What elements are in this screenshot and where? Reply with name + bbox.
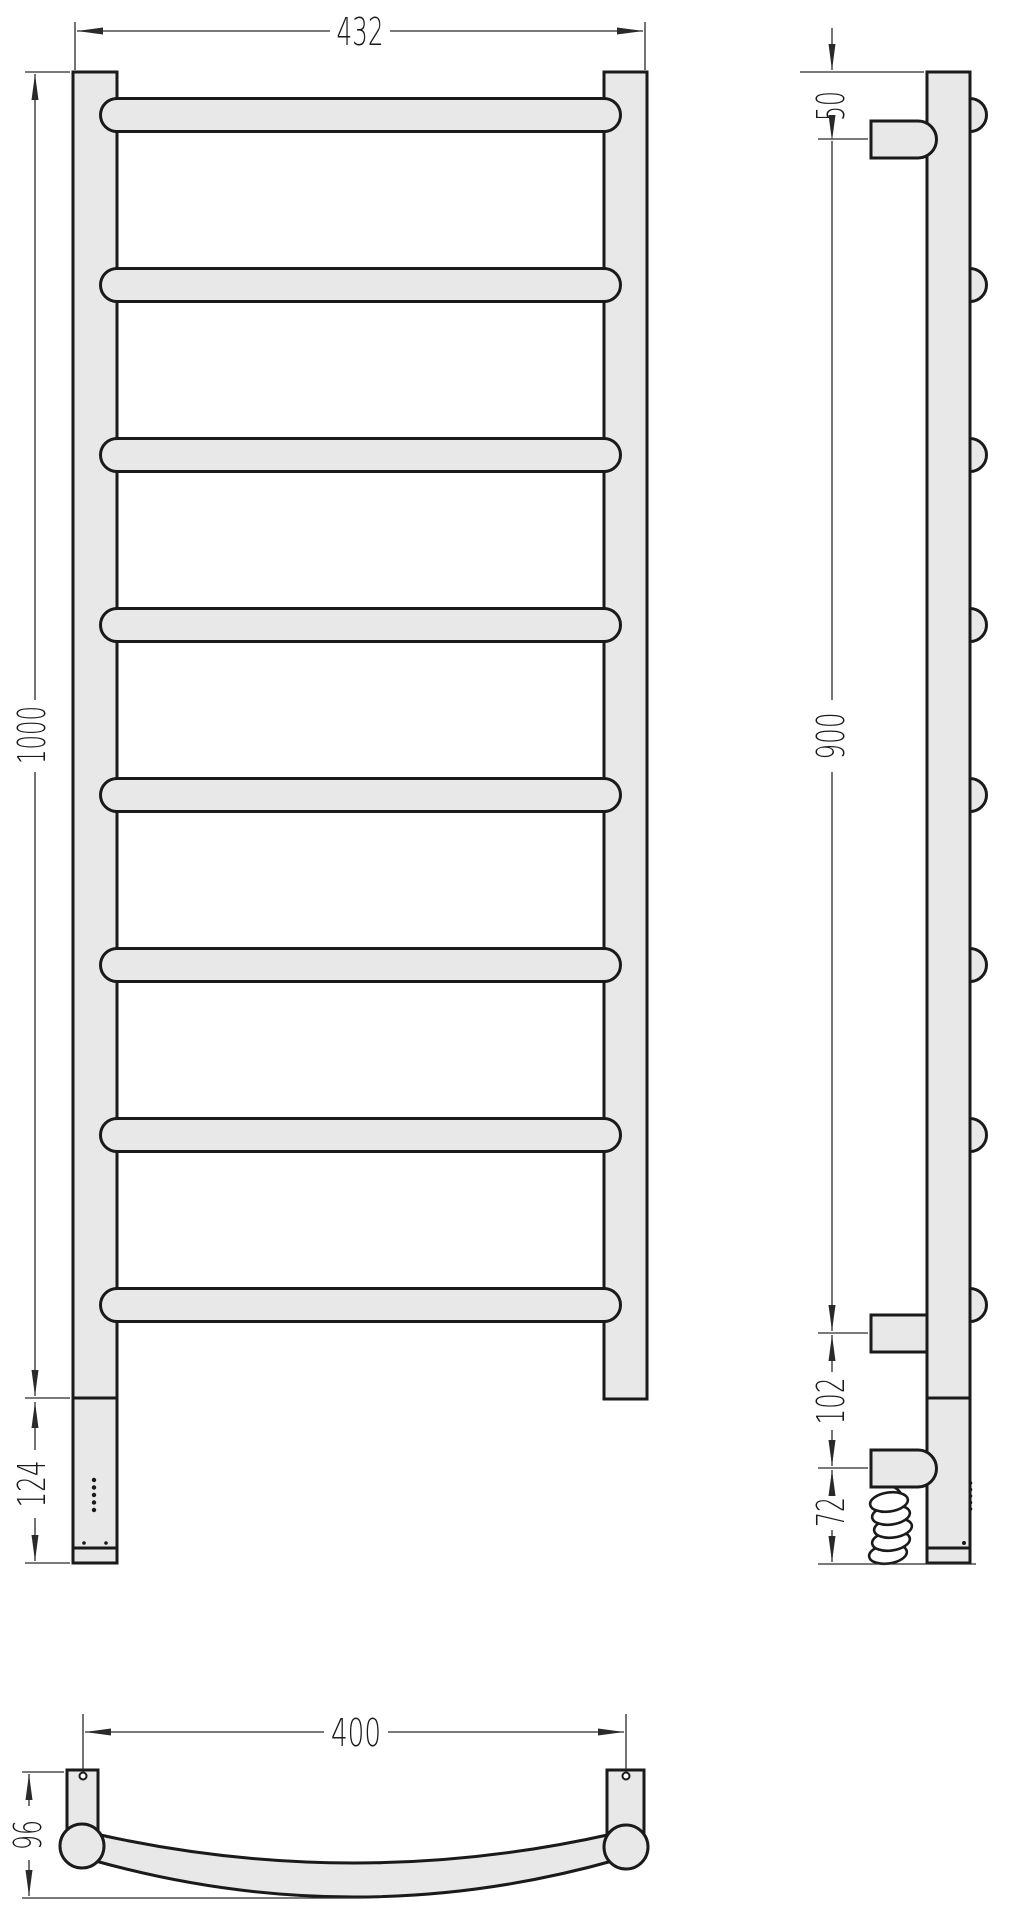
cable-entry-bracket <box>871 1450 937 1487</box>
towel-bar <box>101 609 621 642</box>
right-post-section <box>604 1825 648 1869</box>
towel-bar <box>101 99 621 132</box>
dim-label-432: 432 <box>337 10 384 54</box>
dim-label-72: 72 <box>809 1497 853 1527</box>
dim-label-96: 96 <box>6 1820 50 1850</box>
power-cable-coil <box>868 1487 913 1566</box>
dim-label-900: 900 <box>809 713 853 760</box>
towel-bar <box>101 779 621 812</box>
dim-label-102: 102 <box>809 1378 853 1425</box>
technical-drawing-page: 432 1000 124 50 900 <box>0 0 1020 1920</box>
towel-rail-drawing: 432 1000 124 50 900 <box>0 0 1020 1920</box>
side-post <box>927 72 970 1563</box>
towel-bar <box>101 1119 621 1152</box>
dim-label-50: 50 <box>809 91 853 121</box>
upper-wall-bracket <box>871 121 937 158</box>
towel-bar <box>101 1289 621 1322</box>
right-mount-hole <box>623 1773 630 1780</box>
towel-bar <box>101 949 621 982</box>
dim-label-1000: 1000 <box>10 706 54 764</box>
lower-wall-bracket <box>871 1315 927 1352</box>
left-mount-hole <box>80 1773 87 1780</box>
towel-bar <box>101 439 621 472</box>
towel-bar <box>101 269 621 302</box>
left-post-section <box>60 1824 104 1868</box>
dim-label-124: 124 <box>10 1461 54 1508</box>
dim-label-400: 400 <box>331 1711 381 1755</box>
